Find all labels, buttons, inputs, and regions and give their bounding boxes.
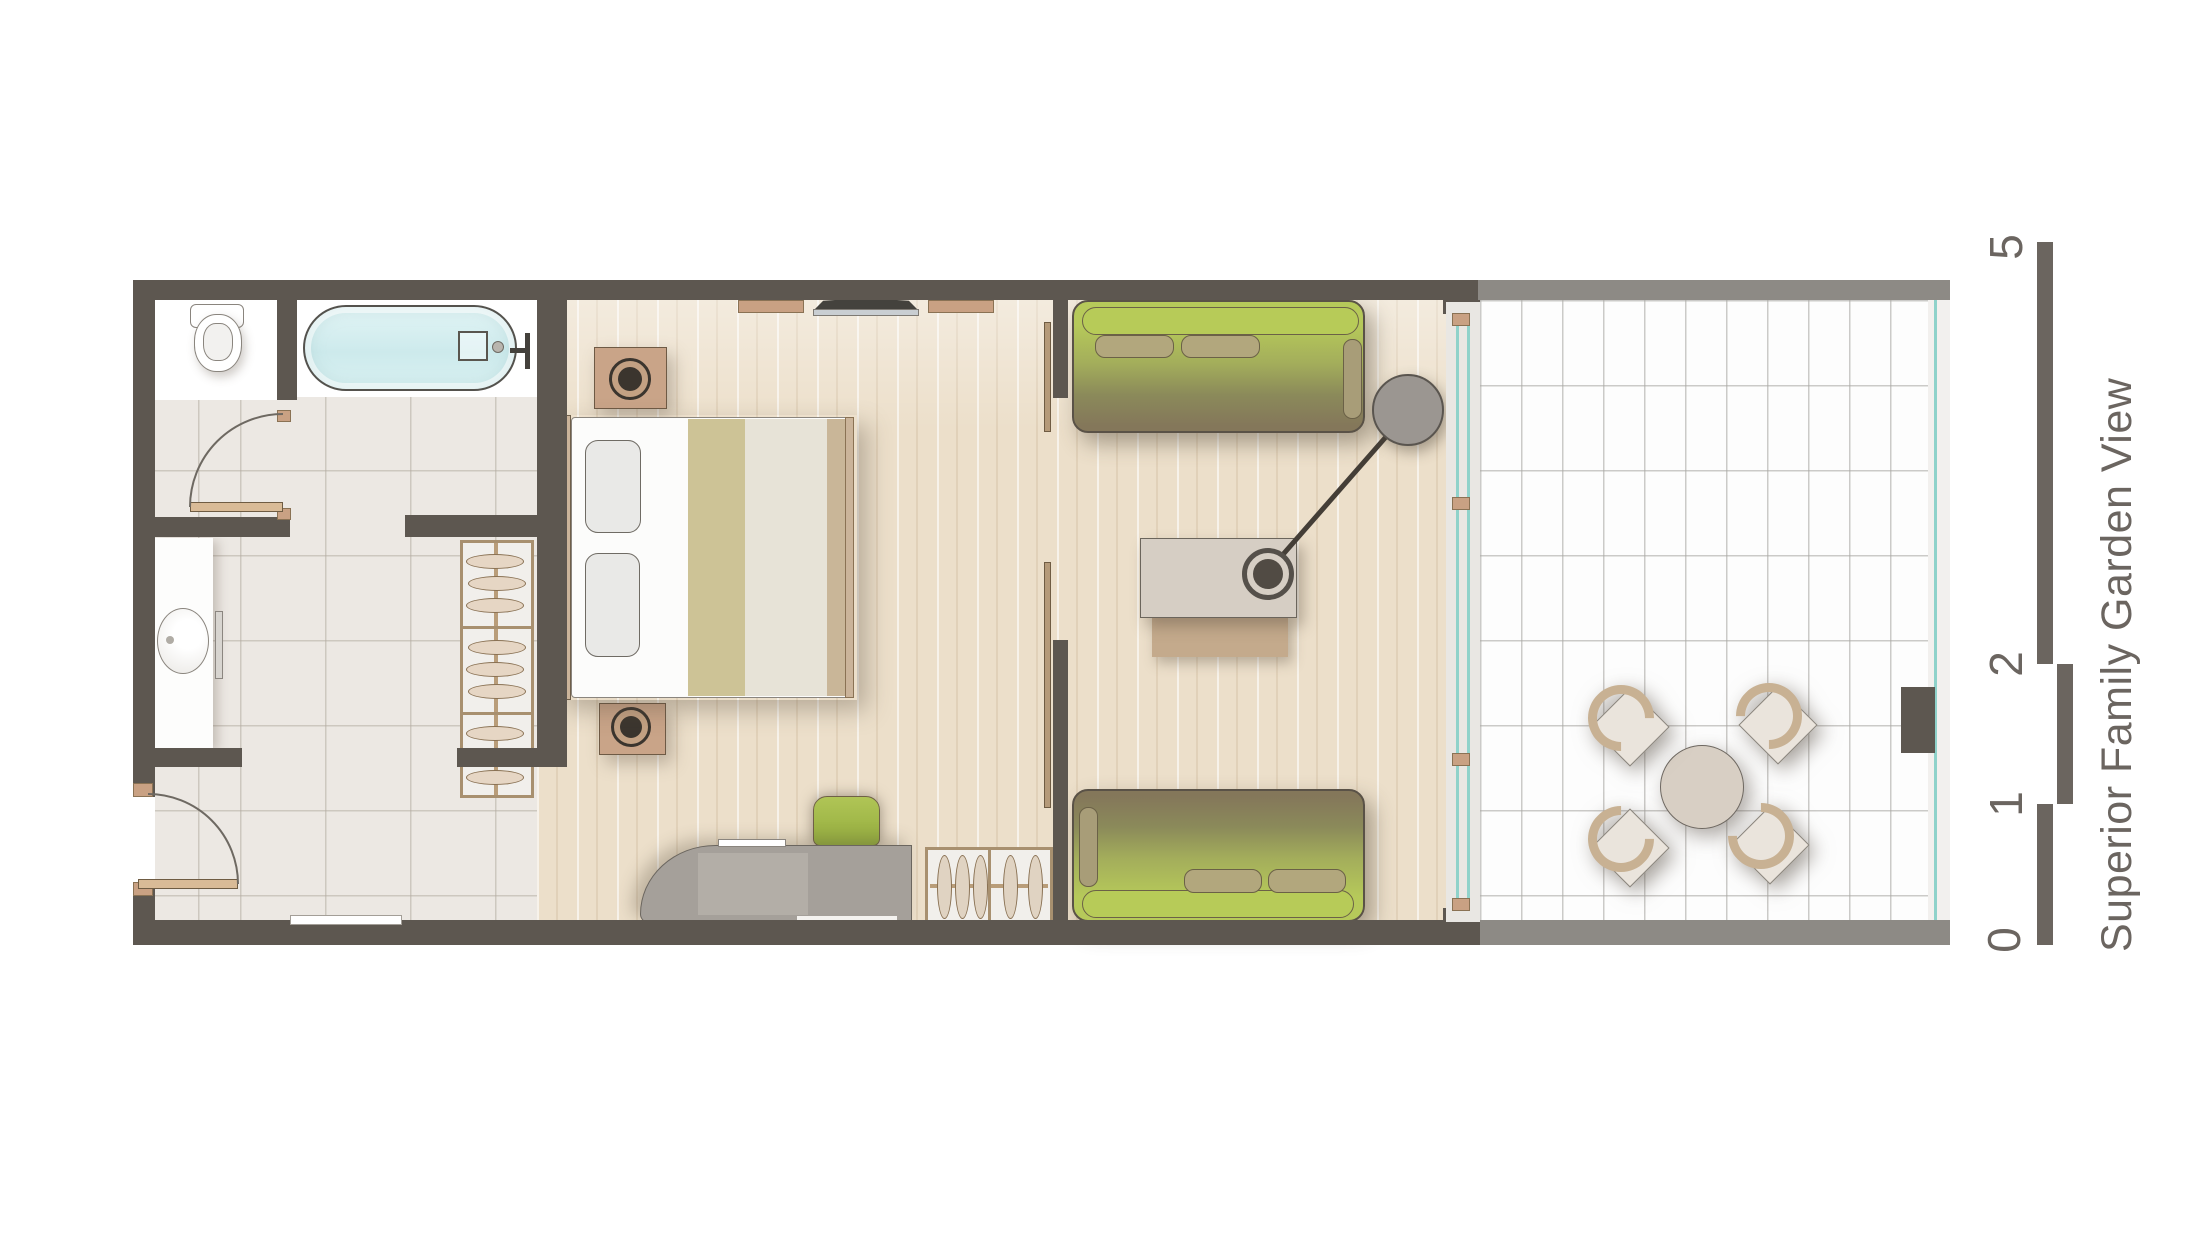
scale-label-0: 0 — [1981, 917, 2027, 963]
bathtub-tray — [458, 331, 488, 361]
terrace-table — [1660, 745, 1744, 829]
sofa-top-seat-cushion — [1181, 335, 1260, 358]
wall-hall-left — [133, 748, 242, 767]
table-lamp-bottom-shade — [620, 716, 642, 738]
sofa-top-seat-cushion — [1095, 335, 1174, 358]
sofa-bottom-back-cushion — [1082, 890, 1354, 918]
glass-wall-frame — [1446, 302, 1480, 922]
sliding-door-leaf-top — [1044, 322, 1051, 432]
desk-stool — [813, 796, 880, 846]
terrace-bottom-edge — [1480, 920, 1950, 945]
bathtub-drain — [492, 341, 504, 353]
entry-door-opening — [133, 797, 155, 882]
wall-left-upper — [133, 280, 155, 797]
arc-lamp-shade — [1372, 374, 1444, 446]
scale-bar-segment-5-2 — [2037, 242, 2053, 664]
scale-label-1: 1 — [1983, 781, 2029, 827]
plan-title: Superior Family Garden View — [2094, 402, 2140, 952]
scale-label-5: 5 — [1983, 224, 2029, 270]
tv-wall-shelf-right — [928, 300, 994, 313]
terrace-right-pillar — [1901, 687, 1935, 753]
wall-hall-right — [457, 748, 567, 767]
terrace-right-strip — [1928, 300, 1950, 920]
bed-duvet-cream — [745, 419, 827, 696]
hanging-clothes — [928, 850, 1050, 922]
glass-mullion — [1452, 313, 1470, 326]
bed-duvet-tan — [827, 419, 845, 696]
entry-door-leaf — [138, 879, 238, 889]
glass-mullion — [1452, 753, 1470, 766]
glass-pane-line — [1467, 313, 1470, 911]
scale-bar-segment-2-1 — [2057, 664, 2073, 804]
tv-wall-shelf-left — [738, 300, 804, 313]
tv-shelf-bar — [813, 309, 919, 316]
glass-mullion — [1452, 497, 1470, 510]
scale-bar-segment-1-0 — [2037, 804, 2053, 945]
coffee-table-rug — [1152, 615, 1288, 657]
washbasin-drain — [166, 636, 174, 644]
terrace-right-glass-line — [1934, 300, 1937, 920]
entry-threshold-mat — [290, 915, 402, 925]
bathroom-door-jamb — [277, 410, 291, 422]
bathroom-door-leaf — [190, 502, 283, 512]
desk-inner-panel — [698, 853, 808, 915]
scale-label-2: 2 — [1983, 641, 2029, 687]
glass-pane-line — [1456, 313, 1459, 911]
sliding-door-leaf-bottom — [1044, 562, 1051, 808]
double-bed — [557, 415, 857, 700]
terrace-top-edge — [1478, 280, 1950, 300]
wall-bath-inner-right — [405, 515, 567, 537]
arc-lamp-base — [1253, 559, 1283, 589]
washbasin — [157, 608, 209, 674]
sofa-bottom — [1072, 789, 1365, 922]
wall-bedroom-living-divider-top — [1053, 280, 1068, 398]
sofa-top-back-cushion — [1082, 307, 1359, 335]
wall-top — [133, 280, 1445, 300]
sofa-bottom-armrest — [1079, 807, 1098, 887]
wall-bedroom-living-divider-bottom — [1053, 640, 1068, 945]
bed-pillow-bottom — [585, 553, 640, 657]
desk-towel — [718, 839, 786, 847]
vanity-mirror — [215, 611, 223, 679]
bed-duvet-khaki — [688, 419, 745, 696]
entry-door-jamb — [133, 783, 153, 797]
sofa-top — [1072, 300, 1365, 433]
bathtub-faucet-spout — [510, 348, 528, 353]
floor-plan-canvas: 5 2 1 0 Superior Family Garden View — [0, 0, 2200, 1238]
wall-bath-inner-left — [133, 517, 290, 537]
sofa-bottom-seat-cushion — [1268, 869, 1346, 893]
sofa-top-armrest — [1343, 339, 1362, 419]
bed-pillow-top — [585, 440, 641, 533]
sofa-bottom-seat-cushion — [1184, 869, 1262, 893]
toilet-bowl-inner — [203, 323, 233, 361]
wall-toilet-stub — [277, 280, 297, 400]
table-lamp-top-shade — [618, 367, 642, 391]
bed-footboard — [845, 417, 854, 698]
glass-mullion — [1452, 898, 1470, 911]
wardrobe — [925, 847, 1053, 925]
